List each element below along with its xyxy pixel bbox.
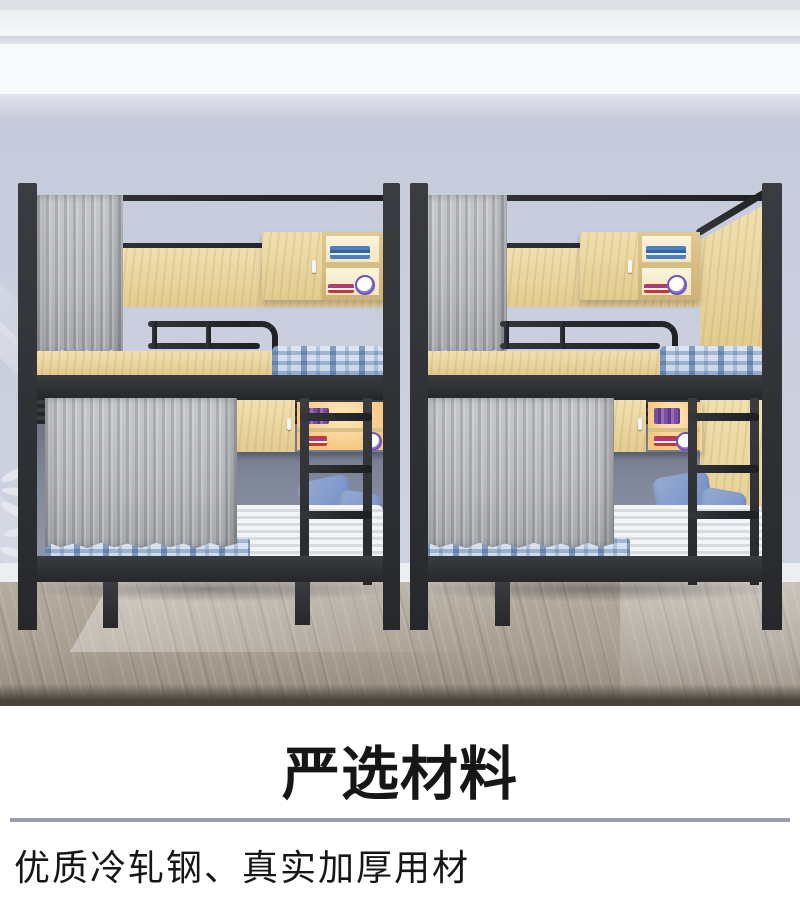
books-decor [654, 408, 680, 424]
guardrail [500, 321, 654, 327]
section-title: 严选材料 [0, 727, 800, 811]
section-subtitle: 优质冷轧钢、真实加厚用材 [14, 839, 470, 891]
ladder-rung [688, 413, 759, 421]
ladder-rung [688, 511, 759, 519]
bed-leg [495, 582, 510, 626]
bunk-bed-right [0, 0, 800, 706]
shelf-cell [642, 268, 691, 295]
books-decor [646, 246, 686, 259]
divider-line [10, 818, 790, 822]
upper-plaid-mattress [660, 346, 762, 375]
upper-bunk-beam [415, 375, 775, 398]
upper-bunk-curtain [420, 195, 507, 355]
caption-section: 严选材料 优质冷轧钢、真实加厚用材 [0, 706, 800, 898]
cabinet-handle [628, 260, 632, 273]
guardrail-post [560, 321, 565, 349]
guardrail [500, 343, 660, 349]
alarm-clock-decor [667, 275, 687, 295]
cabinet-handle [638, 418, 642, 430]
books-decor [654, 436, 678, 446]
bunk-bed-photo [0, 0, 800, 706]
guardrail-post [504, 321, 509, 349]
lower-bunk-curtain [424, 398, 614, 548]
lower-bunk-beam [415, 556, 775, 582]
bed-post [410, 183, 428, 630]
page: 严选材料 优质冷轧钢、真实加厚用材 [0, 0, 800, 898]
upper-bunk-board [424, 351, 660, 375]
bed-post [762, 183, 782, 630]
ladder-rung [688, 465, 759, 473]
shelf-cell [642, 236, 691, 262]
upper-wall-cabinet [580, 232, 700, 300]
cabinet-side-panel [695, 232, 700, 300]
